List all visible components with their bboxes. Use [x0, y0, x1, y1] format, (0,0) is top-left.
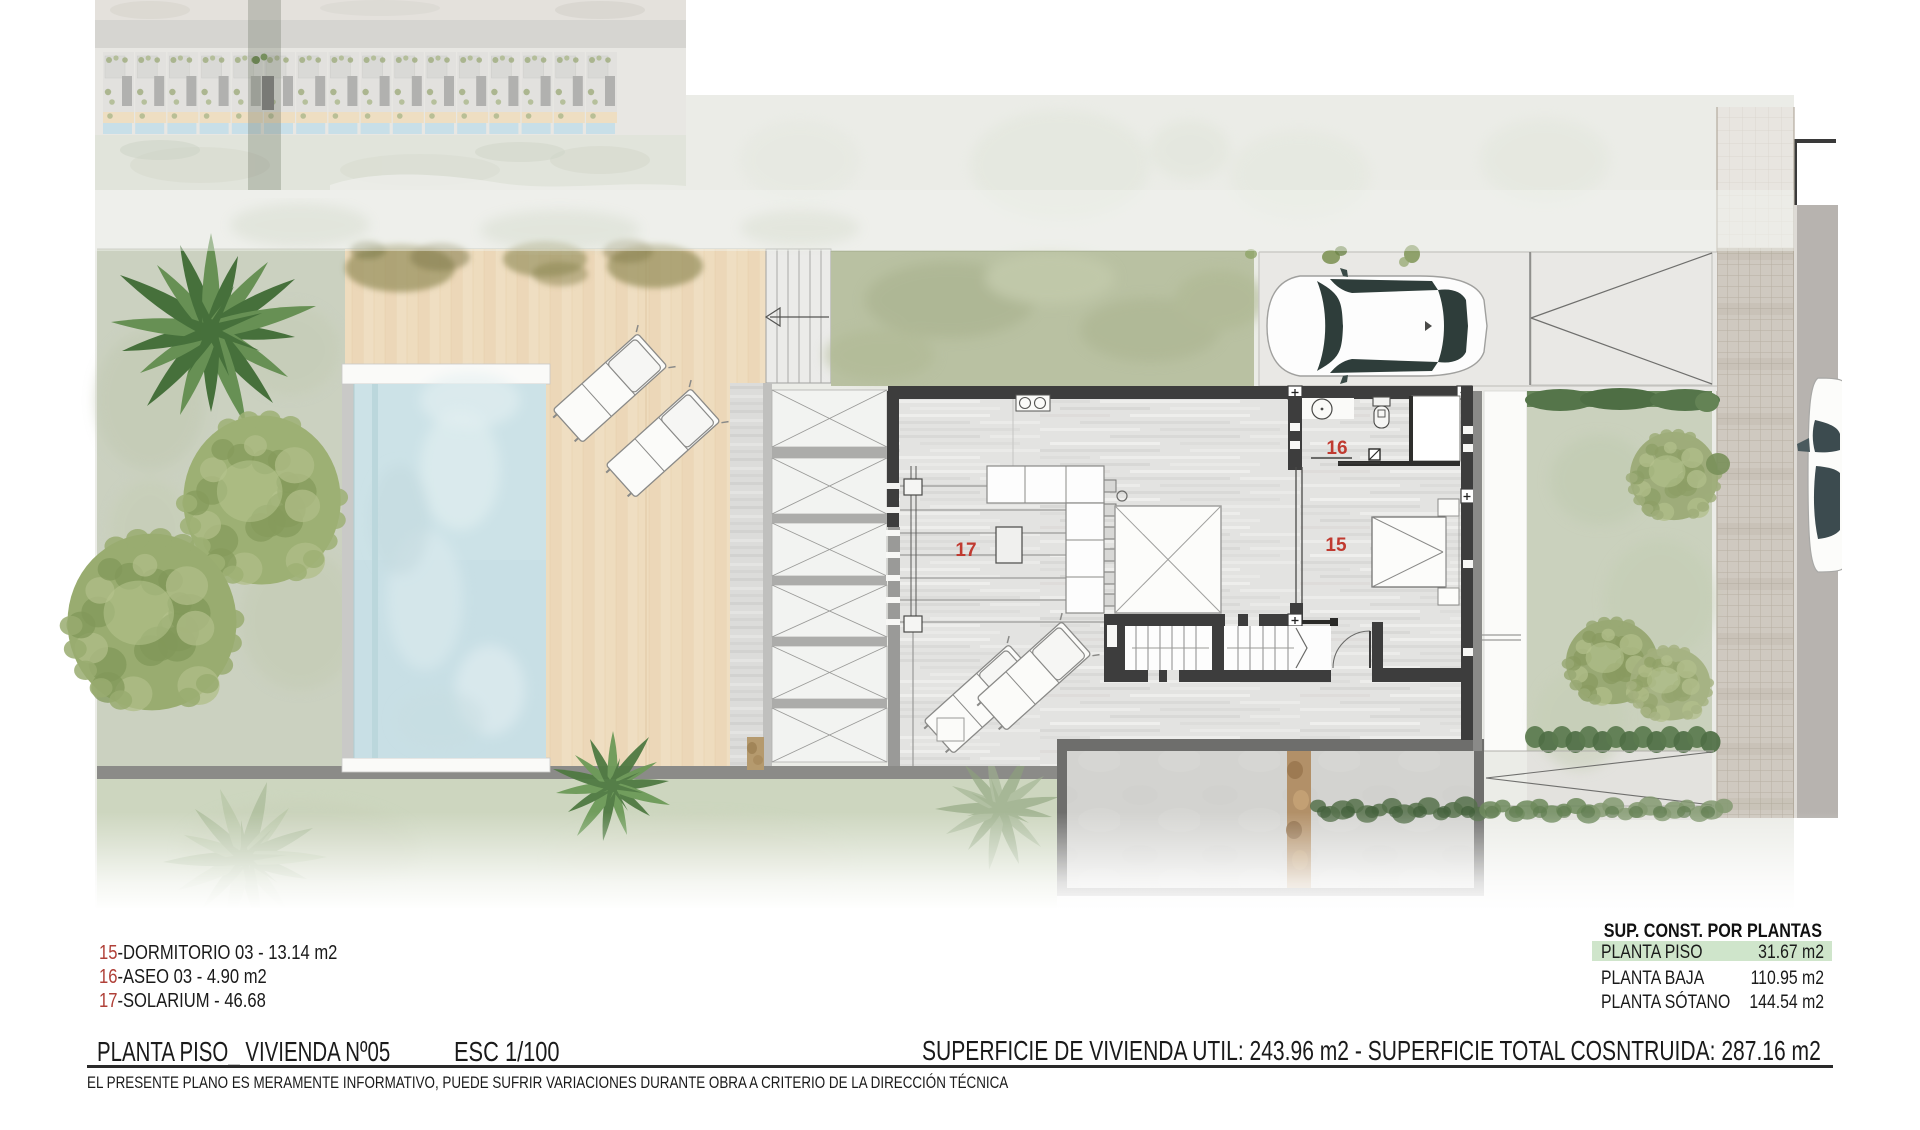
- svg-text:SUP. CONST. POR PLANTAS: SUP. CONST. POR PLANTAS: [1604, 920, 1822, 942]
- svg-text:31.67 m2: 31.67 m2: [1758, 940, 1824, 962]
- svg-text:PLANTA SÓTANO: PLANTA SÓTANO: [1601, 989, 1730, 1012]
- svg-text:17: 17: [955, 540, 976, 561]
- svg-text:PLANTA PISO: PLANTA PISO: [1601, 940, 1702, 962]
- svg-text:16-ASEO 03 - 4.90 m2: 16-ASEO 03 - 4.90 m2: [99, 965, 267, 988]
- svg-text:PLANTA PISO_ VIVIENDA Nº05: PLANTA PISO_ VIVIENDA Nº05: [97, 1037, 390, 1068]
- svg-text:PLANTA BAJA: PLANTA BAJA: [1601, 966, 1704, 988]
- svg-text:110.95 m2: 110.95 m2: [1751, 966, 1824, 988]
- svg-text:ESC 1/100: ESC 1/100: [454, 1036, 560, 1067]
- svg-text:144.54 m2: 144.54 m2: [1749, 990, 1824, 1012]
- svg-text:17-SOLARIUM - 46.68: 17-SOLARIUM - 46.68: [99, 989, 266, 1012]
- svg-text:16: 16: [1326, 438, 1347, 459]
- svg-text:15: 15: [1325, 535, 1347, 556]
- svg-text:EL PRESENTE PLANO ES MERAMENTE: EL PRESENTE PLANO ES MERAMENTE INFORMATI…: [87, 1074, 1009, 1093]
- svg-text:15-DORMITORIO 03 - 13.14 m2: 15-DORMITORIO 03 - 13.14 m2: [99, 941, 337, 964]
- svg-text:SUPERFICIE DE VIVIENDA UTIL: 2: SUPERFICIE DE VIVIENDA UTIL: 243.96 m2 -…: [922, 1036, 1821, 1067]
